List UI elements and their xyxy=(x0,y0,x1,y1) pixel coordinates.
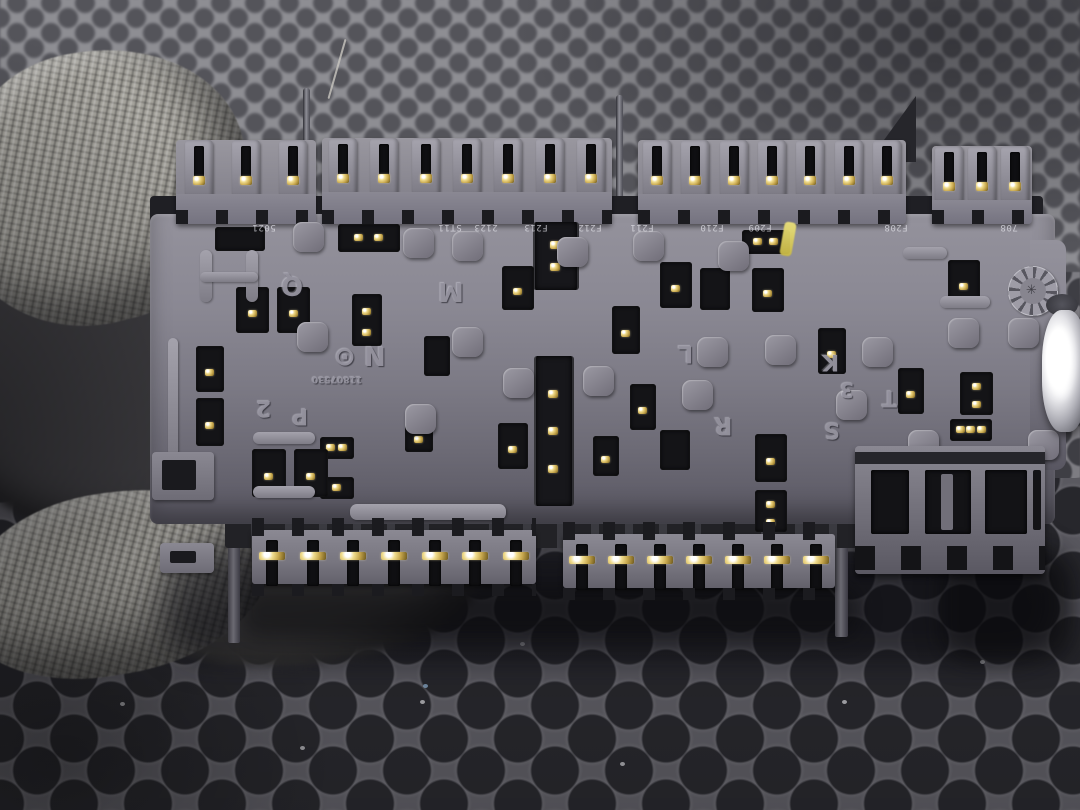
embossed-letter-P: P xyxy=(292,404,308,426)
left-mount-tab xyxy=(160,543,214,573)
printed-fuse-label: F211 xyxy=(630,222,654,231)
bottom-terminal-pin xyxy=(647,556,673,564)
connector-tab xyxy=(536,138,564,194)
molded-rib xyxy=(253,486,315,498)
center-channel-2 xyxy=(534,356,574,506)
bottom-terminal-pin xyxy=(569,556,595,564)
printed-fuse-label: F212 xyxy=(578,222,602,231)
socket-pin xyxy=(906,391,915,398)
embossed-letter-T: T xyxy=(882,386,897,408)
socket-pin xyxy=(338,444,347,451)
tab-terminal-pin xyxy=(337,174,349,183)
molded-bump xyxy=(557,237,588,267)
connector-tab xyxy=(720,140,748,196)
tab-terminal-pin xyxy=(378,174,390,183)
socket-pin xyxy=(362,308,371,315)
connector-tab xyxy=(1001,146,1029,202)
bottom-pin-slot xyxy=(266,540,278,586)
tab-terminal-pin xyxy=(976,182,988,191)
bottom-pin-slot xyxy=(347,540,359,586)
connector-top-lip xyxy=(855,452,1045,464)
molded-bump xyxy=(297,322,328,352)
bottom-terminal-pin xyxy=(300,552,326,560)
molded-bump xyxy=(718,241,749,271)
socket-pin xyxy=(753,238,762,245)
tab-terminal-pin xyxy=(766,176,778,185)
tab-terminal-pin xyxy=(689,176,701,185)
bottom-pin-slot xyxy=(810,544,822,590)
terminal-socket xyxy=(593,436,619,476)
molded-rib xyxy=(940,296,990,308)
connector-tab xyxy=(370,138,398,194)
molded-bump xyxy=(1008,318,1039,348)
bottom-terminal-pin xyxy=(764,556,790,564)
terminal-socket xyxy=(424,336,450,376)
channel-pin xyxy=(548,390,558,398)
bottom-pin-slot xyxy=(429,540,441,586)
terminal-socket xyxy=(950,419,992,441)
socket-pin xyxy=(671,285,680,292)
terminal-socket xyxy=(630,384,656,430)
bottom-module-notches xyxy=(252,518,536,536)
connector-tab xyxy=(835,140,863,196)
left-mount-tab xyxy=(152,452,214,500)
right-power-connector xyxy=(855,446,1045,574)
connector-tab xyxy=(185,140,213,196)
bottom-terminal-pin xyxy=(725,556,751,564)
module-base xyxy=(176,194,316,224)
bottom-module-feet xyxy=(563,588,835,600)
connector-tab xyxy=(968,146,996,202)
terminal-socket xyxy=(498,423,528,469)
molded-bump xyxy=(503,368,534,398)
fuse-box: QM⊙N118075302PLRK3TS5021ST112123F213F212… xyxy=(0,0,1080,810)
bottom-terminal-pin xyxy=(503,552,529,560)
molded-bump xyxy=(403,228,434,258)
terminal-socket xyxy=(338,224,400,252)
top-connector-module-4 xyxy=(932,146,1032,224)
socket-pin xyxy=(289,310,298,317)
connector-tab xyxy=(453,138,481,194)
terminal-socket xyxy=(752,268,784,312)
socket-pin xyxy=(766,501,775,508)
printed-fuse-label: F210 xyxy=(700,222,724,231)
socket-pin xyxy=(621,330,630,337)
printed-fuse-label: ST11 xyxy=(438,222,462,231)
connector-tab xyxy=(494,138,522,194)
module-base-notches xyxy=(176,210,316,224)
socket-pin xyxy=(638,407,647,414)
left-tab-notch xyxy=(170,551,196,563)
embossed-letter-K: K xyxy=(822,350,839,372)
tab-terminal-pin xyxy=(651,176,663,185)
socket-pin xyxy=(414,436,423,443)
socket-pin xyxy=(362,329,371,336)
socket-pin xyxy=(956,426,965,433)
molded-rib xyxy=(253,432,315,444)
bottom-terminal-pin xyxy=(803,556,829,564)
socket-pin xyxy=(264,473,273,480)
socket-pin xyxy=(354,234,363,241)
bottom-terminal-pin xyxy=(462,552,488,560)
stud-glint xyxy=(1050,328,1072,398)
molded-rib xyxy=(200,272,258,282)
connector-tab xyxy=(758,140,786,196)
socket-pin xyxy=(513,288,522,295)
connector-tab xyxy=(232,140,260,196)
molded-bump xyxy=(583,366,614,396)
molded-bump xyxy=(682,380,713,410)
connector-tab xyxy=(935,146,963,202)
tab-terminal-pin xyxy=(804,176,816,185)
date-stamp-glyph: ✳ xyxy=(1026,283,1037,298)
connector-tab xyxy=(681,140,709,196)
bottom-pin-slot xyxy=(771,544,783,590)
socket-pin xyxy=(508,446,517,453)
metal-stud xyxy=(1042,288,1080,448)
socket-pin xyxy=(601,456,610,463)
bottom-pin-slot xyxy=(615,544,627,590)
bottom-pin-slot xyxy=(388,540,400,586)
connector-tab xyxy=(412,138,440,194)
embossed-letter-3: 3 xyxy=(840,380,854,400)
socket-pin xyxy=(306,473,315,480)
connector-tab xyxy=(279,140,307,196)
terminal-socket xyxy=(755,434,787,482)
socket-pin xyxy=(205,422,214,429)
terminal-socket xyxy=(960,372,993,415)
top-connector-module-2 xyxy=(322,138,612,224)
terminal-socket xyxy=(196,398,224,446)
module-base xyxy=(932,200,1032,224)
molded-bump xyxy=(948,318,979,348)
molded-bump xyxy=(765,335,796,365)
molded-bump xyxy=(633,231,664,261)
connector-tab xyxy=(329,138,357,194)
socket-pin xyxy=(248,310,257,317)
bottom-pin-slot xyxy=(576,544,588,590)
top-connector-module-3 xyxy=(638,140,906,224)
tab-terminal-pin xyxy=(585,174,597,183)
tab-terminal-pin xyxy=(943,182,955,191)
socket-pin xyxy=(977,426,986,433)
channel-pin xyxy=(548,465,558,473)
bottom-terminal-pin xyxy=(422,552,448,560)
printed-fuse-label: F209 xyxy=(748,222,772,231)
module-base xyxy=(638,194,906,224)
bottom-connector-module-2 xyxy=(563,522,835,600)
bottom-terminal-pin xyxy=(259,552,285,560)
socket-pin xyxy=(966,426,975,433)
molded-rib xyxy=(903,247,947,259)
tab-terminal-pin xyxy=(1009,182,1021,191)
socket-pin xyxy=(332,484,341,491)
socket-pin xyxy=(205,369,214,376)
connector-slot-1 xyxy=(871,470,909,534)
embossed-letter-R: R xyxy=(714,414,732,438)
module-base-notches xyxy=(638,210,906,224)
tab-terminal-pin xyxy=(728,176,740,185)
slot-divider-post xyxy=(941,474,953,530)
connector-tab xyxy=(577,138,605,194)
embossed-letter-⊙: ⊙ xyxy=(334,344,356,370)
socket-pin xyxy=(769,238,778,245)
bottom-pin-slot xyxy=(510,540,522,586)
molded-bump xyxy=(862,337,893,367)
connector-slot-4 xyxy=(1033,470,1041,530)
connector-tab xyxy=(873,140,901,196)
socket-pin xyxy=(959,283,968,290)
terminal-socket xyxy=(352,294,382,346)
tab-terminal-pin xyxy=(240,176,252,185)
molded-bump xyxy=(697,337,728,367)
socket-pin xyxy=(972,401,981,408)
terminal-socket xyxy=(898,368,924,414)
molded-bump xyxy=(452,327,483,357)
socket-pin xyxy=(763,290,772,297)
embossed-letter-M: M xyxy=(438,278,464,304)
bottom-pin-slot xyxy=(654,544,666,590)
bottom-module-feet xyxy=(252,584,536,596)
embossed-letter-N: N xyxy=(364,342,386,368)
bottom-pin-slot xyxy=(307,540,319,586)
printed-fuse-label: 2123 xyxy=(474,222,498,231)
socket-pin xyxy=(972,383,981,390)
socket-pin xyxy=(766,458,775,465)
bottom-pin-slot xyxy=(732,544,744,590)
tab-terminal-pin xyxy=(544,174,556,183)
embossed-letter-S: S xyxy=(824,418,840,440)
embossed-letter-L: L xyxy=(678,342,693,366)
molded-bump xyxy=(293,222,324,252)
terminal-socket xyxy=(612,306,640,354)
bottom-terminal-pin xyxy=(686,556,712,564)
terminal-socket xyxy=(196,346,224,392)
printed-fuse-label: 708 xyxy=(1000,222,1018,231)
tab-terminal-pin xyxy=(881,176,893,185)
top-connector-module-1 xyxy=(176,140,316,224)
terminal-socket xyxy=(502,266,534,310)
embossed-letter-11807530: 11807530 xyxy=(312,374,362,383)
connector-feet xyxy=(855,546,1045,570)
bottom-terminal-pin xyxy=(608,556,634,564)
tab-terminal-pin xyxy=(843,176,855,185)
bottom-module-notches xyxy=(563,522,835,540)
terminal-socket xyxy=(660,430,690,470)
bottom-connector-module-1 xyxy=(252,518,536,596)
tab-terminal-pin xyxy=(461,174,473,183)
terminal-socket xyxy=(700,268,730,310)
tab-terminal-pin xyxy=(420,174,432,183)
printed-fuse-label: F208 xyxy=(884,222,908,231)
molded-bump xyxy=(452,231,483,261)
bottom-pin-slot xyxy=(469,540,481,586)
tab-terminal-pin xyxy=(193,176,205,185)
molded-bump xyxy=(405,404,436,434)
bottom-terminal-pin xyxy=(340,552,366,560)
bottom-pin-slot xyxy=(693,544,705,590)
molded-rib xyxy=(168,338,178,456)
connector-slot-2 xyxy=(925,470,971,534)
connector-tab xyxy=(796,140,824,196)
socket-pin xyxy=(374,234,383,241)
embossed-letter-2: 2 xyxy=(256,396,271,418)
connector-slot-3 xyxy=(985,470,1027,534)
printed-fuse-label: 5021 xyxy=(252,222,276,231)
module-base xyxy=(322,192,612,224)
bottom-terminal-pin xyxy=(381,552,407,560)
photo-scene: QM⊙N118075302PLRK3TS5021ST112123F213F212… xyxy=(0,0,1080,810)
embossed-letter-Q: Q xyxy=(281,272,303,298)
left-tab-notch xyxy=(162,460,196,490)
tab-terminal-pin xyxy=(287,176,299,185)
terminal-socket xyxy=(660,262,692,308)
connector-tab xyxy=(643,140,671,196)
channel-pin xyxy=(548,427,558,435)
printed-fuse-label: F213 xyxy=(524,222,548,231)
tab-terminal-pin xyxy=(502,174,514,183)
